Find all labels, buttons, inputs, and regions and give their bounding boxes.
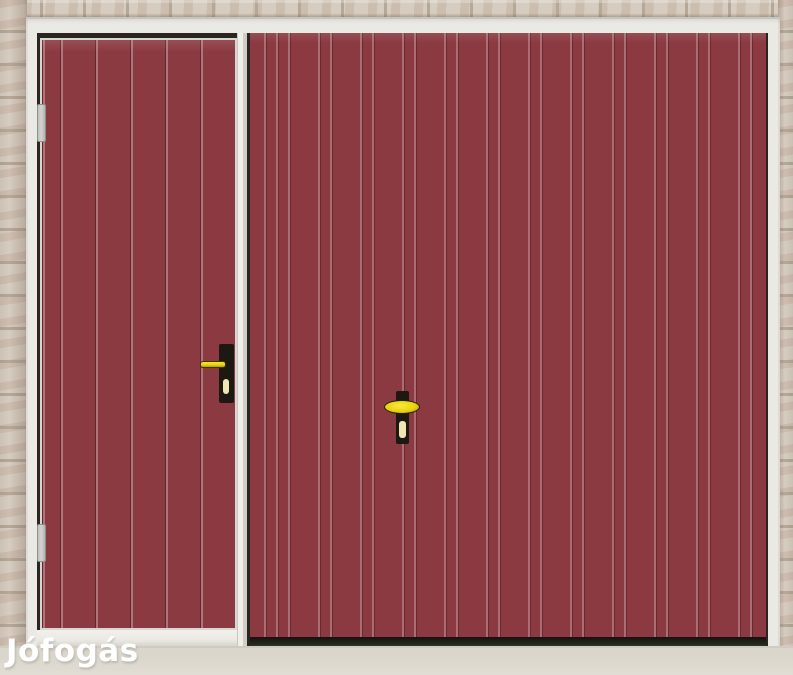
lever-handle-icon <box>200 361 226 368</box>
keyhole-icon <box>223 379 229 394</box>
wicket-door-hinge-top <box>37 104 46 142</box>
wicket-door-handle <box>199 344 235 404</box>
jofogas-watermark: Jófogás <box>6 633 139 669</box>
door-opening <box>37 33 768 648</box>
garage-door-frame <box>26 17 780 650</box>
door-mullion <box>237 33 247 648</box>
main-garage-door-panel <box>250 33 766 637</box>
handle-grip-icon <box>384 400 420 414</box>
keyhole-icon <box>399 421 406 438</box>
brick-wall-left <box>0 0 27 648</box>
handle-backplate <box>219 344 234 403</box>
garage-door-scene: Jófogás <box>0 0 793 675</box>
main-door-t-handle <box>384 391 421 444</box>
wicket-door-panel <box>40 38 237 630</box>
wicket-door-hinge-bottom <box>37 524 46 562</box>
brick-wall-right <box>778 0 793 648</box>
